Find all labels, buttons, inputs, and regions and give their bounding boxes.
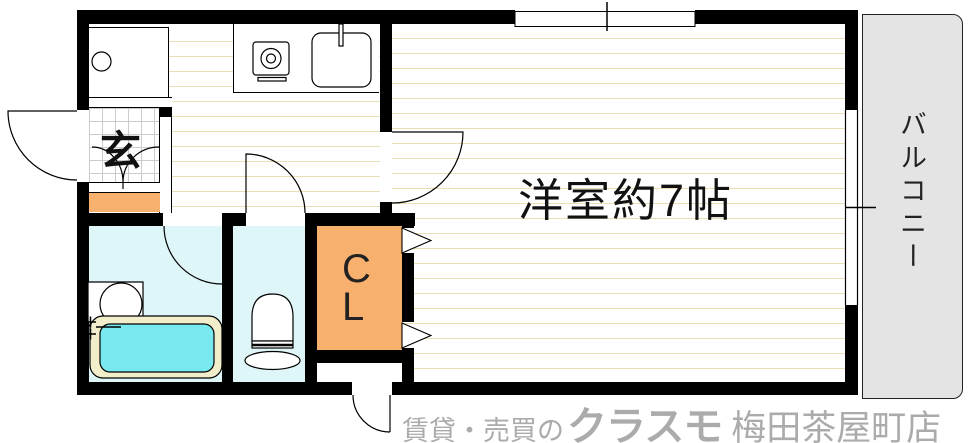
washroom-area bbox=[88, 27, 169, 98]
entrance-door bbox=[8, 111, 77, 180]
bathroom-area bbox=[89, 226, 222, 382]
kitchen-counter bbox=[233, 24, 379, 93]
floor-plan: 洋室約7帖 玄 CL バルコニー 賃貸・売買の クラスモ 梅田茶屋町店 bbox=[0, 0, 973, 443]
wall-closet-right-b bbox=[402, 253, 414, 322]
washroom-partition bbox=[87, 97, 172, 108]
entrance-side-wall-stub bbox=[159, 108, 172, 117]
entrance-step bbox=[89, 193, 160, 212]
wall-corridor-a bbox=[77, 213, 163, 226]
watermark-prefix: 賃貸・売買の bbox=[402, 409, 564, 443]
wall-corridor-b bbox=[222, 213, 246, 226]
toilet-room-area bbox=[233, 226, 305, 382]
wall-top-right bbox=[695, 10, 858, 24]
watermark-brand-logo: クラスモ bbox=[567, 394, 722, 443]
wall-below-closet bbox=[305, 350, 414, 363]
main-room-label: 洋室約7帖 bbox=[518, 164, 733, 229]
wall-bath-toilet bbox=[222, 226, 233, 382]
balcony-label: バルコニー bbox=[892, 110, 931, 275]
wall-bottom-left bbox=[77, 382, 352, 395]
entrance-label: 玄 bbox=[100, 117, 141, 177]
entrance-side-wall bbox=[159, 108, 172, 213]
wall-left-upper bbox=[77, 10, 89, 110]
wall-closet-right-a bbox=[402, 213, 414, 228]
watermark-store: 梅田茶屋町店 bbox=[731, 400, 941, 443]
service-space bbox=[317, 363, 402, 382]
entrance-step-edge bbox=[89, 182, 160, 193]
watermark: 賃貸・売買の クラスモ 梅田茶屋町店 bbox=[402, 394, 941, 443]
wall-right-lower bbox=[845, 305, 858, 395]
wall-top-left bbox=[77, 10, 515, 24]
wall-corridor-c bbox=[305, 213, 415, 226]
wall-mainroom-left-upper bbox=[380, 24, 392, 132]
closet-label: CL bbox=[342, 250, 376, 326]
wall-right-upper bbox=[845, 10, 858, 110]
service-door bbox=[353, 395, 390, 432]
